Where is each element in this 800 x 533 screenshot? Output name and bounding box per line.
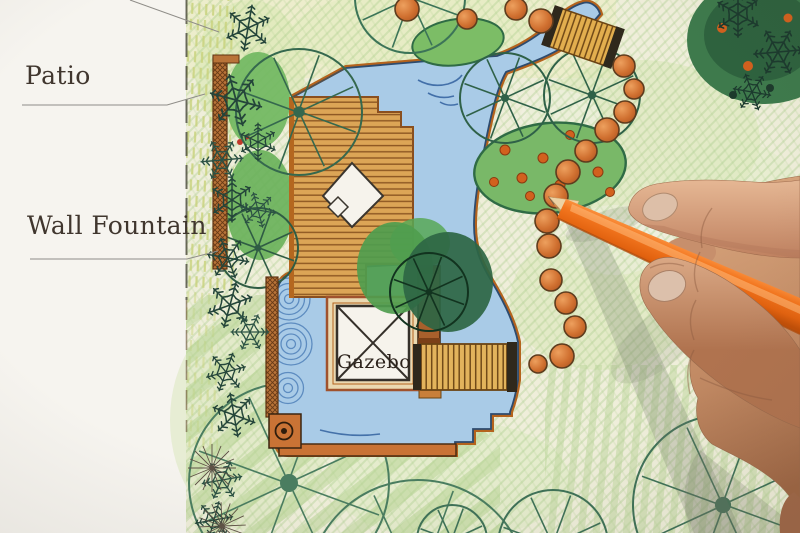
label-patio: Patio: [25, 61, 91, 90]
photo-landscape-plan: Gazebo: [0, 0, 800, 533]
photo-vignette: [0, 0, 800, 533]
label-wall-fountain: Wall Fountain: [27, 211, 207, 240]
plan-drawing: Gazebo: [0, 0, 800, 533]
